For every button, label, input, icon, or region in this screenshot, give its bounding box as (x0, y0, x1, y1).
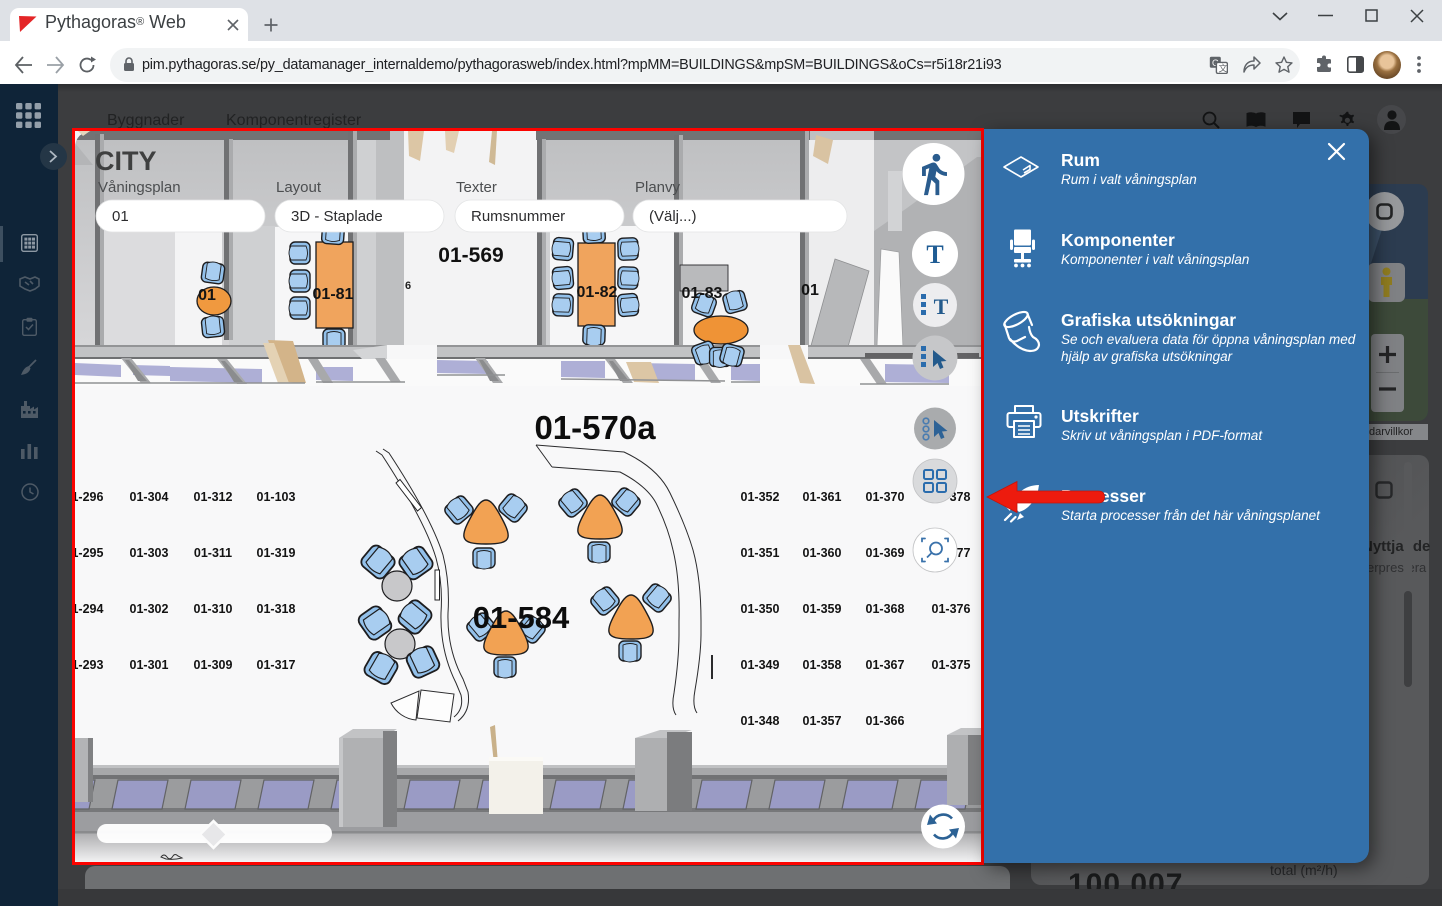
svg-text:01-352: 01-352 (741, 490, 780, 504)
svg-text:CITY: CITY (95, 146, 157, 176)
svg-text:01-83: 01-83 (682, 285, 723, 302)
svg-text:3D - Staplade: 3D - Staplade (291, 208, 383, 225)
svg-text:01-311: 01-311 (194, 546, 232, 560)
svg-text:01-367: 01-367 (866, 658, 905, 672)
svg-text:01-312: 01-312 (194, 490, 233, 504)
svg-text:01-376: 01-376 (932, 602, 971, 616)
svg-text:01-296: 01-296 (75, 490, 104, 504)
svg-text:T: T (926, 240, 943, 269)
svg-text:01-570a: 01-570a (534, 409, 656, 446)
svg-text:T: T (934, 294, 949, 319)
svg-text:01-293: 01-293 (75, 658, 104, 672)
svg-text:01-103: 01-103 (257, 490, 296, 504)
svg-text:01-370: 01-370 (866, 490, 905, 504)
svg-text:01-366: 01-366 (866, 714, 905, 728)
svg-text:01-318: 01-318 (257, 602, 296, 616)
svg-text:6: 6 (405, 280, 411, 292)
svg-text:01-294: 01-294 (75, 602, 104, 616)
svg-text:01-309: 01-309 (194, 658, 233, 672)
svg-text:文: 文 (1219, 63, 1228, 74)
svg-text:01-348: 01-348 (741, 714, 780, 728)
svg-text:01-584: 01-584 (473, 600, 570, 635)
svg-text:01: 01 (801, 282, 819, 299)
svg-text:Texter: Texter (456, 179, 497, 196)
svg-text:Layout: Layout (276, 179, 322, 196)
svg-text:01-319: 01-319 (257, 546, 296, 560)
svg-text:Rumsnummer: Rumsnummer (471, 208, 565, 225)
svg-text:01-310: 01-310 (194, 602, 233, 616)
svg-text:01-302: 01-302 (130, 602, 169, 616)
svg-text:01-350: 01-350 (741, 602, 780, 616)
svg-text:01-303: 01-303 (130, 546, 169, 560)
svg-text:Planvy: Planvy (635, 179, 681, 196)
svg-text:01-349: 01-349 (741, 658, 780, 672)
svg-text:01-304: 01-304 (130, 490, 169, 504)
svg-text:01-375: 01-375 (932, 658, 971, 672)
svg-text:01-317: 01-317 (257, 658, 296, 672)
svg-text:Våningsplan: Våningsplan (98, 179, 181, 196)
svg-text:01: 01 (112, 208, 129, 225)
svg-text:01-368: 01-368 (866, 602, 905, 616)
svg-text:01: 01 (198, 287, 216, 304)
svg-text:(Välj...): (Välj...) (649, 208, 697, 225)
svg-text:01-369: 01-369 (866, 546, 905, 560)
svg-text:01-357: 01-357 (803, 714, 842, 728)
svg-text:01-359: 01-359 (803, 602, 842, 616)
svg-text:01-81: 01-81 (313, 286, 354, 303)
svg-text:01-295: 01-295 (75, 546, 104, 560)
svg-text:01-569: 01-569 (438, 244, 503, 267)
svg-text:01-82: 01-82 (577, 284, 618, 301)
svg-text:01-301: 01-301 (130, 658, 169, 672)
svg-text:01-360: 01-360 (803, 546, 842, 560)
svg-text:01-361: 01-361 (803, 490, 842, 504)
svg-text:01-351: 01-351 (741, 546, 780, 560)
svg-text:01-358: 01-358 (803, 658, 842, 672)
